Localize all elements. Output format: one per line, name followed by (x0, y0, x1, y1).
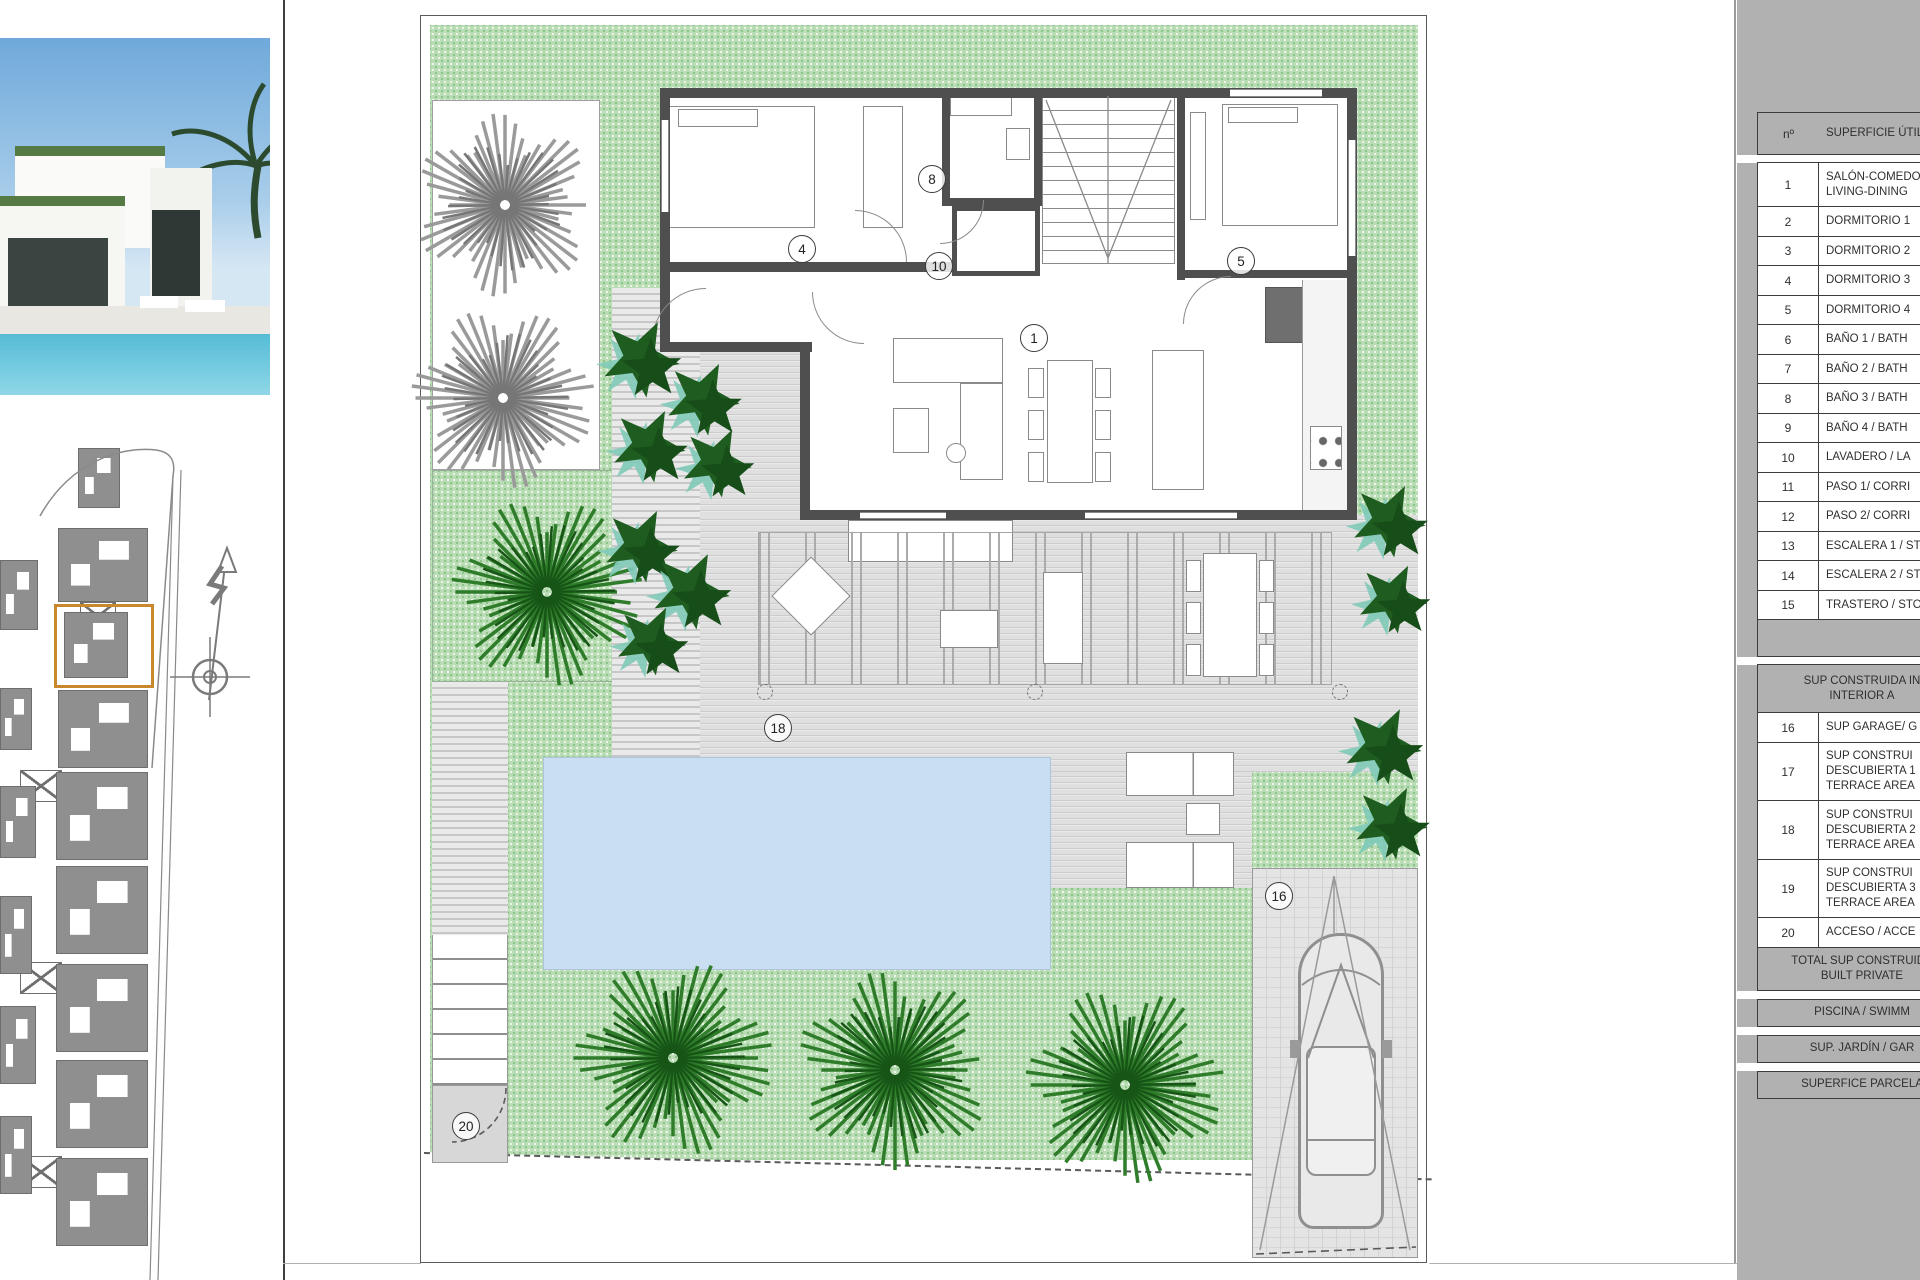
surface-table: nº SUPERFICIE ÚTIL 1SALÓN-COMEDOR LIVING… (1757, 112, 1920, 1099)
table-row: 18SUP CONSTRUI DESCUBIERTA 2 TERRACE ARE… (1757, 800, 1920, 860)
row-label: DORMITORIO 1 (1819, 207, 1920, 236)
photo-pool (0, 334, 270, 395)
row-number: 17 (1758, 743, 1819, 801)
site-building-block (0, 560, 38, 630)
glass-facade (8, 238, 108, 306)
total-row: TOTAL SUP CONSTRUIDA BUILT PRIVATE (1757, 947, 1920, 991)
roof-hedge (15, 146, 165, 156)
summary-bar: SUP. JARDÍN / GAR (1757, 1035, 1920, 1063)
table-header-row: nº SUPERFICIE ÚTIL (1757, 112, 1920, 155)
site-building-block (56, 866, 148, 954)
roof-hedge (0, 196, 125, 206)
row-label: SUP CONSTRUI DESCUBIERTA 1 TERRACE AREA (1819, 743, 1920, 801)
row-number: 15 (1758, 591, 1819, 620)
plan-sheet: 145810161820 nº SUPERFICIE ÚTIL 1SALÓN-C… (0, 0, 1920, 1280)
villa-photo (0, 38, 270, 395)
row-number: 19 (1758, 860, 1819, 918)
site-building-block (0, 688, 32, 750)
row-label: SALÓN-COMEDOR LIVING-DINING (1819, 163, 1920, 207)
built-area-rows: 16SUP GARAGE/ G17SUP CONSTRUI DESCUBIERT… (1757, 712, 1920, 948)
useful-surface-rows: 1SALÓN-COMEDOR LIVING-DINING2DORMITORIO … (1757, 162, 1920, 621)
row-number: 3 (1758, 237, 1819, 266)
summary-bar: SUPERFICE PARCELA (1757, 1071, 1920, 1099)
row-number: 18 (1758, 801, 1819, 859)
row-label: ESCALERA 1 / ST (1819, 532, 1920, 561)
summary-bar: PISCINA / SWIMM (1757, 999, 1920, 1027)
site-building-block (0, 896, 32, 974)
row-label: DORMITORIO 3 (1819, 266, 1920, 295)
row-label: SUP CONSTRUI DESCUBIERTA 3 TERRACE AREA (1819, 860, 1920, 918)
table-row: 9BAÑO 4 / BATH (1757, 413, 1920, 444)
table-row: 14ESCALERA 2 / ST (1757, 560, 1920, 591)
site-building-block (0, 1116, 32, 1194)
panel-divider-left (283, 0, 285, 1280)
row-number: 7 (1758, 355, 1819, 384)
row-number: 2 (1758, 207, 1819, 236)
table-header-label: SUPERFICIE ÚTIL (1819, 113, 1920, 154)
row-number: 4 (1758, 266, 1819, 295)
room-number-16: 16 (1265, 882, 1293, 910)
room-number-8: 8 (918, 165, 946, 193)
row-number: 12 (1758, 502, 1819, 531)
photo-lounger (185, 300, 225, 312)
row-label: PASO 2/ CORRI (1819, 502, 1920, 531)
panel-divider-right (1734, 0, 1736, 1263)
site-plan-highlight (54, 604, 154, 688)
row-label: PASO 1/ CORRI (1819, 473, 1920, 502)
row-number: 20 (1758, 918, 1819, 947)
site-building-block (0, 1006, 36, 1084)
row-label: LAVADERO / LA (1819, 443, 1920, 472)
room-number-18: 18 (764, 714, 792, 742)
site-building-block (58, 690, 148, 768)
table-row: 12PASO 2/ CORRI (1757, 501, 1920, 532)
table-row: 6BAÑO 1 / BATH (1757, 324, 1920, 355)
room-number-1: 1 (1020, 324, 1048, 352)
built-area-header: SUP CONSTRUIDA IN INTERIOR A (1757, 664, 1920, 714)
table-row: 11PASO 1/ CORRI (1757, 472, 1920, 503)
table-row: 1SALÓN-COMEDOR LIVING-DINING (1757, 162, 1920, 208)
row-label: BAÑO 1 / BATH (1819, 325, 1920, 354)
site-building-block (58, 528, 148, 602)
area-table-panel: nº SUPERFICIE ÚTIL 1SALÓN-COMEDOR LIVING… (1737, 0, 1920, 1280)
row-number: 8 (1758, 384, 1819, 413)
row-label: ACCESO / ACCE (1819, 918, 1920, 947)
table-gap (1737, 991, 1920, 999)
table-row: 13ESCALERA 1 / ST (1757, 531, 1920, 562)
table-row: 17SUP CONSTRUI DESCUBIERTA 1 TERRACE ARE… (1757, 742, 1920, 802)
table-header-number: nº (1758, 113, 1819, 154)
plan-border-frame (420, 15, 1427, 1263)
site-building-block (56, 1060, 148, 1148)
table-row: 20ACCESO / ACCE (1757, 917, 1920, 948)
row-number: 10 (1758, 443, 1819, 472)
table-row: 2DORMITORIO 1 (1757, 206, 1920, 237)
row-number: 13 (1758, 532, 1819, 561)
table-row: 4DORMITORIO 3 (1757, 265, 1920, 296)
row-label: DORMITORIO 4 (1819, 296, 1920, 325)
row-label: SUP GARAGE/ G (1819, 713, 1920, 742)
room-number-5: 5 (1227, 247, 1255, 275)
site-building-block (0, 786, 36, 858)
north-arrow-icon (170, 548, 250, 717)
table-row: 7BAÑO 2 / BATH (1757, 354, 1920, 385)
row-label: TRASTERO / STO (1819, 591, 1920, 620)
dark-opening (152, 210, 200, 296)
row-number: 5 (1758, 296, 1819, 325)
row-number: 1 (1758, 163, 1819, 207)
row-label: DORMITORIO 2 (1819, 237, 1920, 266)
table-row: 8BAÑO 3 / BATH (1757, 383, 1920, 414)
site-building-block (78, 448, 120, 508)
table-row: 3DORMITORIO 2 (1757, 236, 1920, 267)
room-number-4: 4 (788, 235, 816, 263)
photo-terrace (0, 306, 270, 336)
summary-bars: PISCINA / SWIMMSUP. JARDÍN / GARSUPERFIC… (1757, 999, 1920, 1099)
table-row: 10LAVADERO / LA (1757, 442, 1920, 473)
row-number: 14 (1758, 561, 1819, 590)
row-label: SUP CONSTRUI DESCUBIERTA 2 TERRACE AREA (1819, 801, 1920, 859)
row-label: BAÑO 3 / BATH (1819, 384, 1920, 413)
table-row: 5DORMITORIO 4 (1757, 295, 1920, 326)
room-number-20: 20 (452, 1112, 480, 1140)
row-number: 16 (1758, 713, 1819, 742)
room-number-10: 10 (925, 252, 953, 280)
table-row: 16SUP GARAGE/ G (1757, 712, 1920, 743)
row-number: 6 (1758, 325, 1819, 354)
site-building-block (56, 1158, 148, 1246)
site-building-block (56, 964, 148, 1052)
row-label: ESCALERA 2 / ST (1819, 561, 1920, 590)
table-row: 15TRASTERO / STO (1757, 590, 1920, 621)
row-label: BAÑO 2 / BATH (1819, 355, 1920, 384)
row-label: BAÑO 4 / BATH (1819, 414, 1920, 443)
table-row: 19SUP CONSTRUI DESCUBIERTA 3 TERRACE ARE… (1757, 859, 1920, 919)
photo-lounger (140, 296, 178, 308)
row-number: 11 (1758, 473, 1819, 502)
table-spacer-row (1757, 619, 1920, 657)
site-building-block (56, 772, 148, 860)
row-number: 9 (1758, 414, 1819, 443)
